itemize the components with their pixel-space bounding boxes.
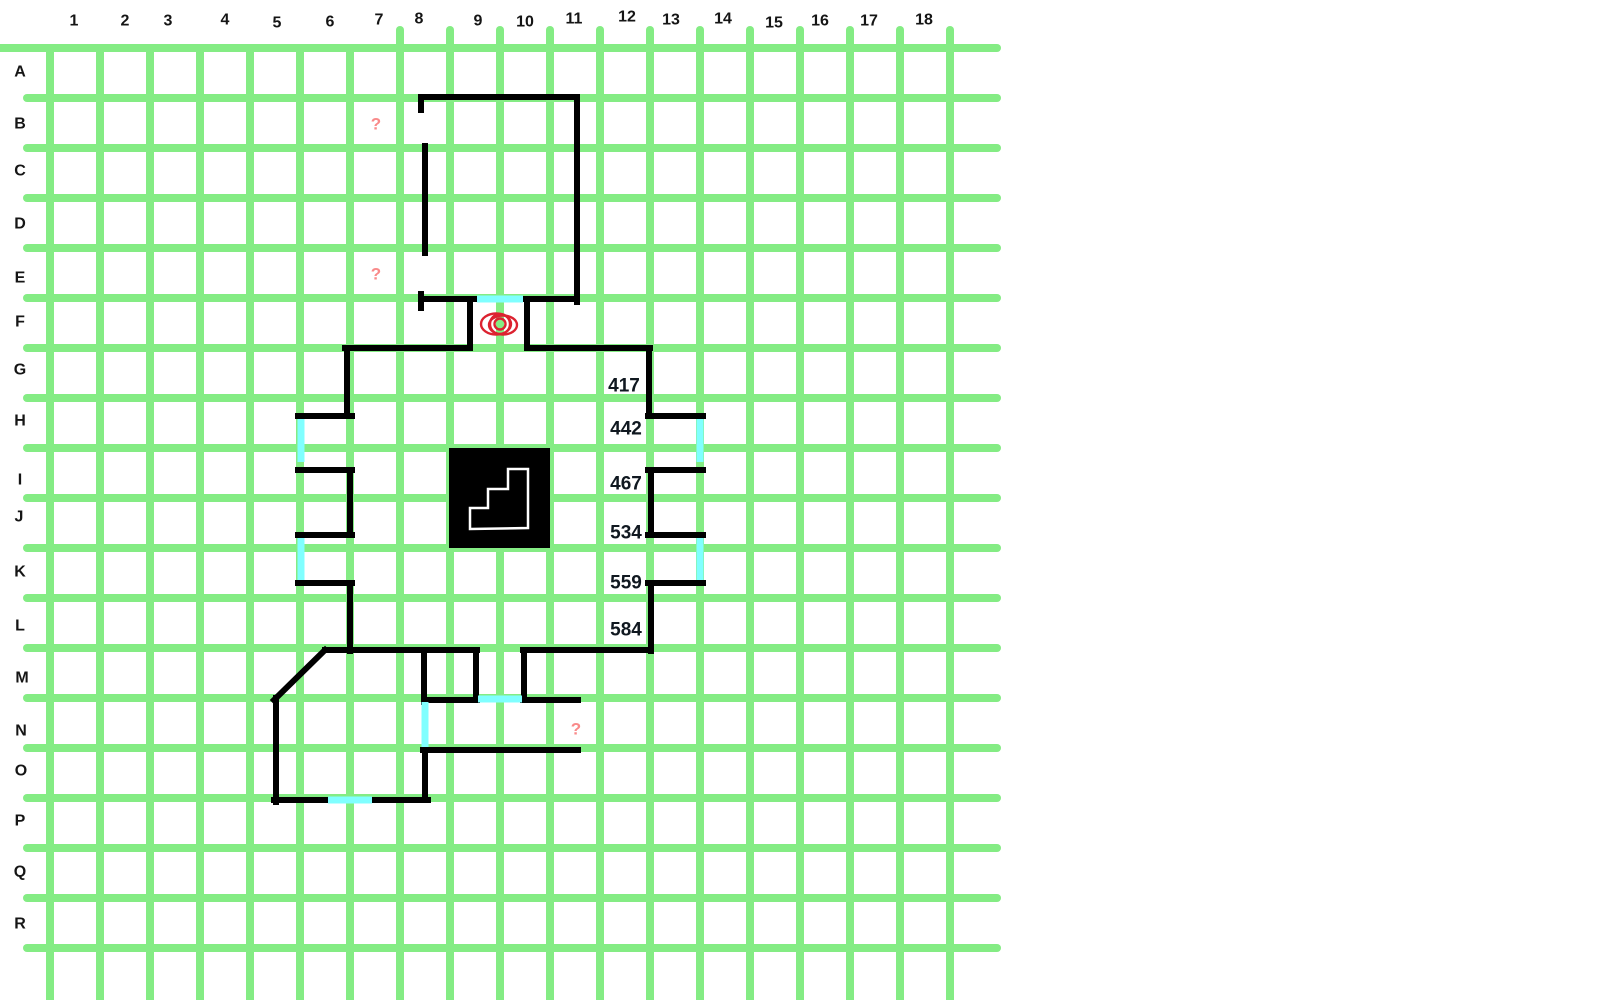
stairs-icon — [449, 448, 550, 548]
row-label-F: F — [15, 314, 25, 331]
column-label-4: 4 — [221, 12, 230, 29]
row-label-O: O — [15, 763, 27, 780]
row-label-H: H — [14, 413, 26, 430]
column-label-6: 6 — [326, 14, 335, 31]
row-label-C: C — [14, 163, 26, 180]
row-label-G: G — [14, 362, 26, 379]
column-label-14: 14 — [714, 11, 732, 28]
question-mark-3: ? — [571, 720, 581, 739]
column-label-7: 7 — [375, 12, 384, 29]
column-label-1: 1 — [70, 13, 79, 30]
row-label-I: I — [18, 472, 22, 489]
column-label-2: 2 — [121, 13, 130, 30]
column-label-5: 5 — [273, 15, 282, 32]
row-label-B: B — [14, 116, 26, 133]
row-label-L: L — [15, 618, 25, 635]
column-label-16: 16 — [811, 13, 829, 30]
row-label-M: M — [15, 670, 28, 687]
column-label-8: 8 — [415, 11, 424, 28]
column-label-13: 13 — [662, 12, 680, 29]
row-label-K: K — [14, 564, 26, 581]
room-number-534: 534 — [610, 523, 642, 544]
room-number-442: 442 — [610, 419, 642, 440]
room-number-559: 559 — [610, 573, 642, 594]
row-label-N: N — [15, 723, 27, 740]
room-number-417: 417 — [608, 376, 640, 397]
question-mark-2: ? — [371, 265, 381, 284]
dungeon-map: 123456789101112131415161718 ABCDEFGHIJKL… — [0, 0, 1601, 1000]
column-label-12: 12 — [618, 9, 636, 26]
row-label-P: P — [15, 813, 26, 830]
column-label-18: 18 — [915, 12, 933, 29]
room-number-467: 467 — [610, 474, 642, 495]
column-label-9: 9 — [474, 13, 483, 30]
column-label-17: 17 — [860, 13, 878, 30]
row-label-A: A — [14, 64, 26, 81]
question-mark-1: ? — [371, 115, 381, 134]
column-label-11: 11 — [566, 11, 583, 28]
column-label-3: 3 — [164, 13, 173, 30]
column-label-10: 10 — [516, 14, 534, 31]
row-label-R: R — [14, 916, 26, 933]
row-label-Q: Q — [14, 864, 26, 881]
room-number-584: 584 — [610, 620, 642, 641]
row-label-J: J — [15, 509, 24, 526]
column-label-15: 15 — [765, 15, 783, 32]
paint-canvas: 123456789101112131415161718 ABCDEFGHIJKL… — [0, 0, 1601, 1000]
row-label-E: E — [15, 270, 26, 287]
stairs-block — [449, 448, 550, 548]
row-label-D: D — [14, 216, 26, 233]
